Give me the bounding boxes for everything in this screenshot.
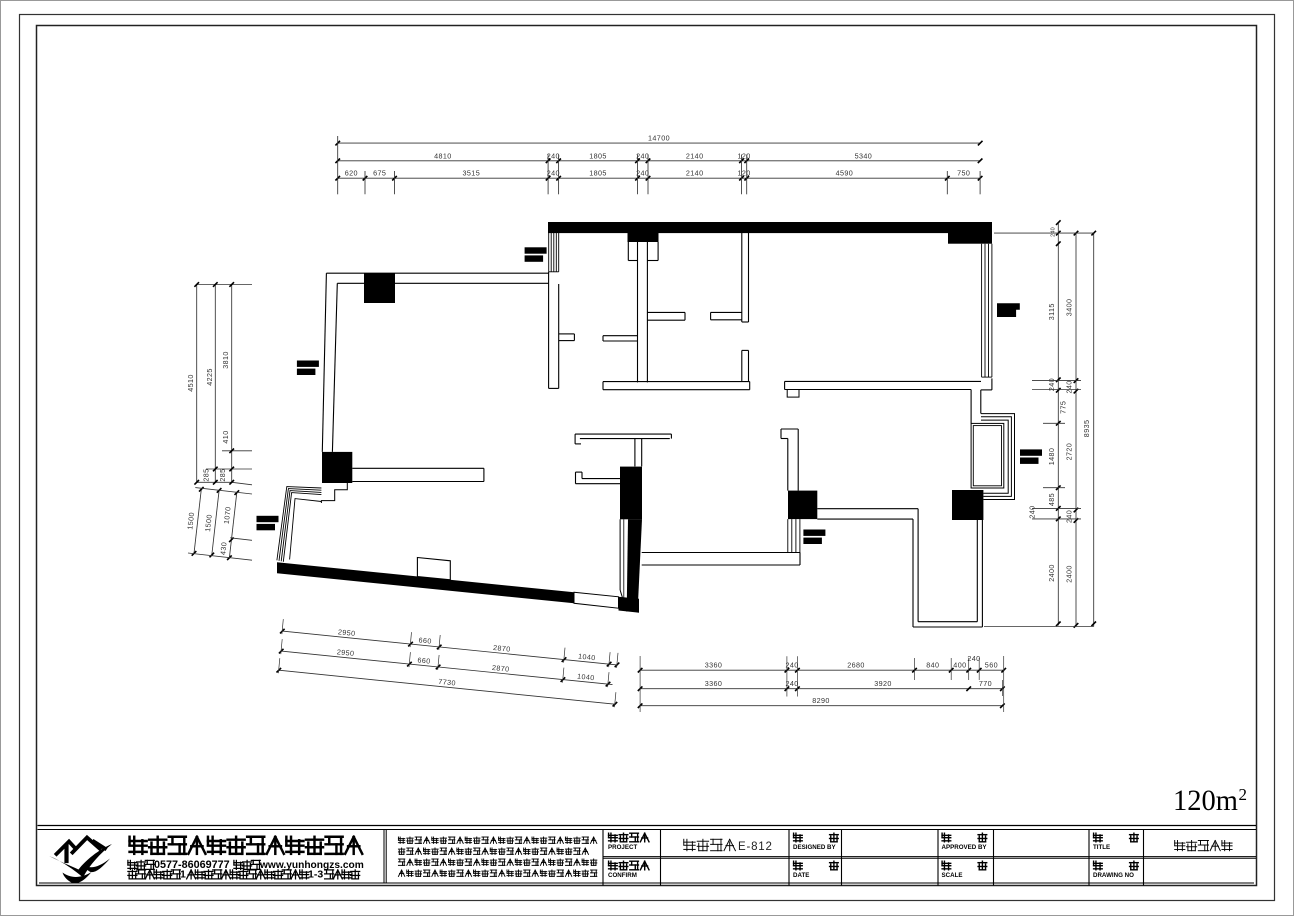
svg-text:240: 240 — [785, 679, 798, 688]
svg-text:1500: 1500 — [185, 512, 196, 530]
svg-text:675: 675 — [373, 169, 386, 178]
svg-text:2950: 2950 — [338, 627, 356, 638]
svg-text:3115: 3115 — [1047, 303, 1056, 320]
svg-text:2680: 2680 — [847, 661, 865, 670]
svg-text:8935: 8935 — [1082, 420, 1091, 438]
svg-text:770: 770 — [979, 679, 992, 688]
svg-text:285: 285 — [202, 468, 211, 481]
svg-text:CONFIRM: CONFIRM — [608, 872, 637, 879]
svg-text:240: 240 — [1047, 378, 1056, 391]
svg-text:SCALE: SCALE — [942, 872, 963, 879]
svg-text:PROJECT: PROJECT — [608, 844, 637, 851]
svg-text:4590: 4590 — [836, 169, 854, 178]
svg-text:240: 240 — [1050, 227, 1056, 237]
svg-text:120: 120 — [737, 151, 750, 160]
svg-text:3400: 3400 — [1065, 299, 1074, 317]
svg-text:1805: 1805 — [589, 169, 607, 178]
svg-text:2720: 2720 — [1065, 443, 1074, 461]
svg-text:240: 240 — [967, 654, 980, 663]
svg-text:2140: 2140 — [686, 151, 704, 160]
svg-text:APPROVED BY: APPROVED BY — [942, 844, 988, 851]
svg-text:240: 240 — [1065, 510, 1074, 523]
svg-text:3810: 3810 — [221, 351, 230, 369]
svg-text:4225: 4225 — [205, 368, 214, 386]
svg-text:0577-86069777: 0577-86069777 — [154, 859, 230, 871]
svg-text:240: 240 — [547, 151, 560, 160]
svg-text:DRAWING NO: DRAWING NO — [1093, 872, 1134, 879]
svg-text:2140: 2140 — [686, 169, 704, 178]
svg-text:8290: 8290 — [812, 696, 830, 705]
svg-text:E-812: E-812 — [738, 841, 773, 853]
svg-text:240: 240 — [636, 151, 649, 160]
svg-text:2: 2 — [1239, 785, 1248, 804]
svg-text:3515: 3515 — [463, 169, 481, 178]
svg-text:120m: 120m — [1173, 784, 1238, 817]
svg-text:3360: 3360 — [705, 661, 723, 670]
svg-text:4510: 4510 — [186, 374, 195, 392]
svg-text:2400: 2400 — [1047, 564, 1056, 582]
svg-text:2950: 2950 — [336, 647, 354, 658]
svg-text:7730: 7730 — [438, 677, 456, 688]
svg-text:660: 660 — [418, 635, 432, 645]
svg-text:750: 750 — [957, 169, 970, 178]
svg-text:3920: 3920 — [874, 679, 892, 688]
svg-text:840: 840 — [926, 661, 939, 670]
svg-text:240: 240 — [785, 661, 798, 670]
svg-text:120: 120 — [737, 169, 750, 178]
svg-text:1805: 1805 — [589, 151, 607, 160]
svg-text:1070: 1070 — [222, 506, 233, 524]
svg-text:1040: 1040 — [577, 672, 595, 683]
svg-text:485: 485 — [1047, 493, 1056, 506]
svg-text:DATE: DATE — [793, 872, 809, 879]
svg-text:2870: 2870 — [493, 643, 511, 654]
svg-text:620: 620 — [345, 169, 358, 178]
svg-text:TITLE: TITLE — [1093, 844, 1110, 851]
svg-text:2870: 2870 — [492, 663, 510, 674]
svg-text:400: 400 — [953, 661, 966, 670]
svg-text:430: 430 — [218, 541, 228, 555]
svg-text:2400: 2400 — [1065, 565, 1074, 583]
svg-text:1480: 1480 — [1047, 448, 1056, 466]
svg-text:1: 1 — [180, 869, 186, 881]
svg-text:4810: 4810 — [434, 151, 452, 160]
svg-text:3360: 3360 — [705, 679, 723, 688]
svg-text:560: 560 — [985, 661, 998, 670]
svg-text:1040: 1040 — [578, 652, 596, 663]
svg-text:240: 240 — [1065, 380, 1074, 393]
svg-text:5340: 5340 — [855, 151, 873, 160]
svg-text:660: 660 — [417, 655, 431, 665]
svg-text:1500: 1500 — [203, 514, 214, 532]
svg-text:1-3: 1-3 — [308, 869, 323, 881]
svg-text:775: 775 — [1058, 401, 1067, 414]
svg-text:285: 285 — [218, 468, 227, 481]
svg-text:DESIGNED BY: DESIGNED BY — [793, 844, 837, 851]
svg-text:410: 410 — [221, 430, 230, 443]
svg-text:240: 240 — [636, 169, 649, 178]
svg-text:14700: 14700 — [648, 134, 670, 143]
svg-text:240: 240 — [547, 169, 560, 178]
svg-text:240: 240 — [1027, 505, 1036, 518]
